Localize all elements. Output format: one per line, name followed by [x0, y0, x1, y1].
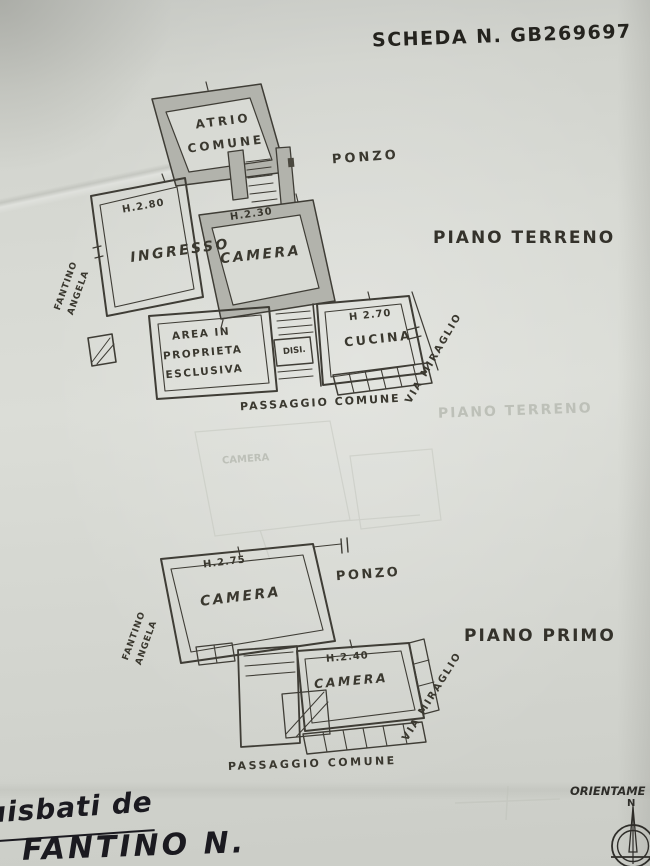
north-label: N: [627, 794, 635, 813]
room-label-area-esclusiva: AREA IN PROPRIETA ESCLUSIVA: [161, 322, 245, 385]
ghost-text-piano-terreno: PIANO TERRENO: [438, 395, 593, 427]
room-label-disimpegno: DISI.: [282, 342, 306, 360]
compass-icon: [611, 806, 650, 866]
fold-mark: [455, 786, 560, 820]
ghost-bleedthrough-linework: [195, 421, 441, 560]
height-label-camera2: H.2.40: [325, 646, 369, 669]
handwritten-note-line2: FANTINO N.: [21, 814, 247, 866]
neighbor-label-ponzo-first: PONZO: [335, 561, 401, 590]
ghost-text-camera: CAMERA: [221, 448, 270, 470]
neighbor-label-ponzo-ground: PONZO: [331, 144, 399, 173]
floor-plan-linework: [0, 0, 650, 866]
room-label-atrio-comune: ATRIO COMUNE: [184, 105, 266, 160]
plan-title-piano-terreno: PIANO TERRENO: [433, 222, 615, 254]
ground-floor-plan-drawing: [88, 82, 438, 399]
scanned-cadastral-sheet: SCHEDA N. GB269697 ATRIO COMUNE PONZO PI…: [0, 0, 650, 866]
plan-title-piano-primo: PIANO PRIMO: [464, 620, 616, 652]
